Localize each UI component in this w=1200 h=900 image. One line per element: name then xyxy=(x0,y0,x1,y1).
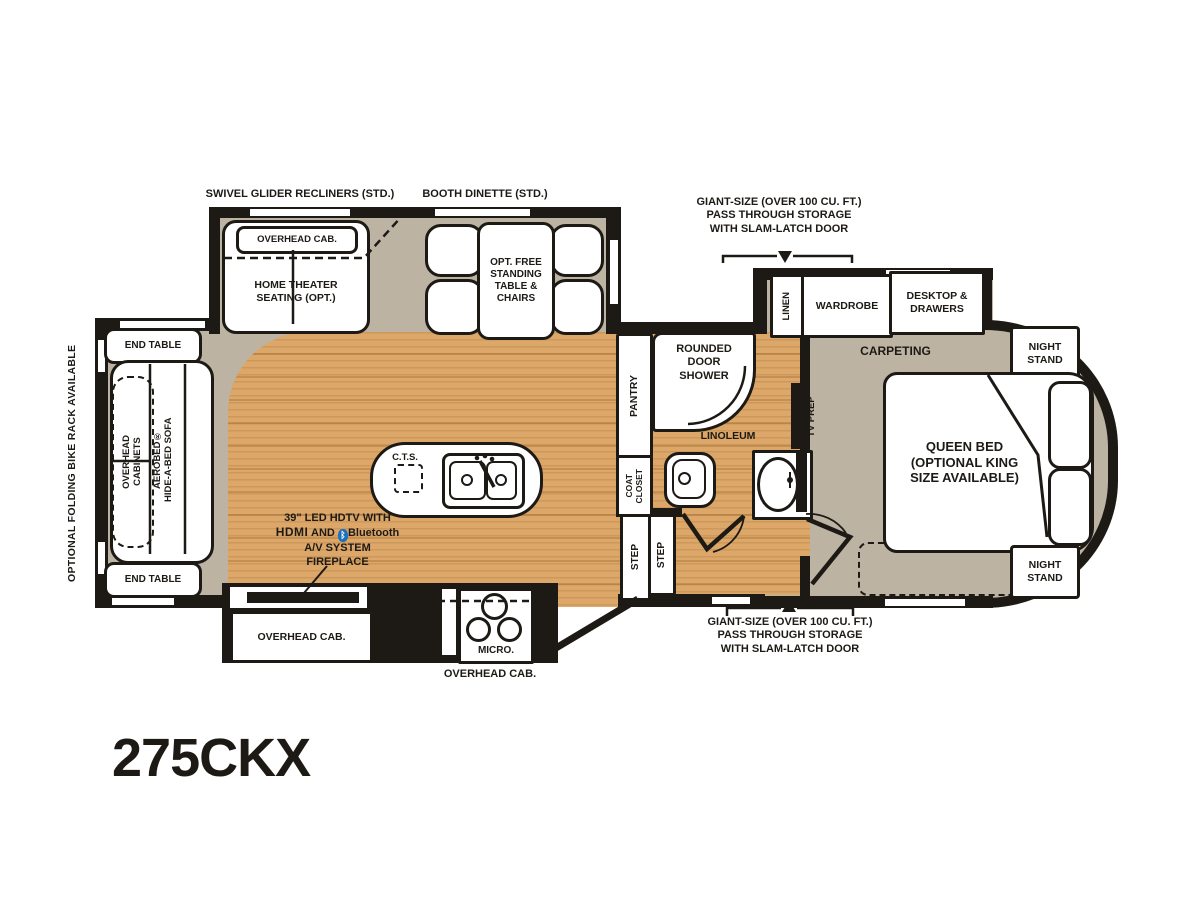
queen-bed-label: QUEEN BED(OPTIONAL KINGSIZE AVAILABLE) xyxy=(910,439,1019,487)
coat-closet: COATCLOSET xyxy=(616,455,653,517)
end-table-bottom: END TABLE xyxy=(104,562,202,598)
linen-label: LINEN xyxy=(782,292,793,321)
overhead-cabinets-label: OVERHEADCABINETS xyxy=(122,435,144,489)
micro-label: MICRO. xyxy=(478,645,514,657)
sink-drain-left xyxy=(461,474,473,486)
overhead-cab-below-label: OVERHEAD CAB. xyxy=(430,668,550,681)
step-right: STEP xyxy=(648,514,676,596)
dinette-chair xyxy=(550,224,604,277)
window-bottom-mid xyxy=(712,597,750,604)
coat-closet-label: COATCLOSET xyxy=(625,469,645,503)
counter-divider xyxy=(442,589,456,655)
window-rear-bottom xyxy=(112,598,174,605)
burner xyxy=(481,593,508,620)
linen-closet: LINEN xyxy=(770,274,805,338)
tv-prep-label: TV PREP xyxy=(806,380,824,454)
sink-drain-right xyxy=(495,474,507,486)
night-stand-bottom: NIGHTSTAND xyxy=(1010,545,1080,599)
pantry-label: PANTRY xyxy=(628,375,640,417)
sofa-label: AEROBED®HIDE-A-BED SOFA xyxy=(152,378,192,542)
desktop-drawers: DESKTOP &DRAWERS xyxy=(889,271,985,335)
slide-left-wall xyxy=(209,207,220,334)
wardrobe: WARDROBE xyxy=(801,274,893,338)
bike-rack-caption: OPTIONAL FOLDING BIKE RACK AVAILABLE xyxy=(66,316,88,610)
carpeting-label: CARPETING xyxy=(838,344,953,359)
hall-right-wall-lower xyxy=(800,556,810,604)
overhead-cab-ent-label: OVERHEAD CAB. xyxy=(257,631,345,644)
home-theater-label: HOME THEATERSEATING (OPT.) xyxy=(254,279,337,305)
night-stand-top-label: NIGHTSTAND xyxy=(1027,341,1062,367)
overhead-cab-living: OVERHEAD CAB. xyxy=(236,226,358,254)
window-recliner xyxy=(250,209,350,216)
overhead-cab-entertainment: OVERHEAD CAB. xyxy=(230,611,373,663)
window-slide-right xyxy=(610,240,618,304)
dinette-chair xyxy=(425,224,484,277)
linoleum-label: LINOLEUM xyxy=(688,430,768,443)
model-number: 275CKX xyxy=(112,726,310,792)
storage-front-caption: GIANT-SIZE (OVER 100 CU. FT.) PASS THROU… xyxy=(659,196,899,236)
end-table-top-label: END TABLE xyxy=(125,340,181,352)
slide-dinette-caption: BOOTH DINETTE (STD.) xyxy=(405,188,565,201)
desktop-drawers-label: DESKTOP &DRAWERS xyxy=(907,290,968,316)
end-table-top: END TABLE xyxy=(104,328,202,364)
step-right-label: STEP xyxy=(656,542,668,568)
shower-label: ROUNDEDDOORSHOWER xyxy=(661,343,747,383)
burner xyxy=(466,617,491,642)
hdmi-logo: HDMI xyxy=(276,525,309,539)
dinette-table: OPT. FREESTANDING TABLE &CHAIRS xyxy=(477,222,555,340)
window-dinette xyxy=(435,209,530,216)
toilet-flush xyxy=(678,472,691,485)
storage-rear-caption: GIANT-SIZE (OVER 100 CU. FT.) PASS THROU… xyxy=(670,616,910,656)
pantry: PANTRY xyxy=(616,333,653,459)
tv-caption: 39" LED HDTV WITH HDMI AND ᛒBluetooth A/… xyxy=(240,512,435,569)
vanity-sink xyxy=(757,457,799,512)
overhead-cab-living-label: OVERHEAD CAB. xyxy=(257,234,337,246)
window-bedroom-bottom xyxy=(885,599,965,606)
dinette-chair xyxy=(425,279,484,335)
step-left-label: STEP xyxy=(630,544,642,570)
cts-outline xyxy=(394,464,423,493)
dinette-table-label: OPT. FREESTANDING TABLE &CHAIRS xyxy=(490,257,542,306)
wardrobe-label: WARDROBE xyxy=(816,300,878,313)
entry-floor-patch xyxy=(556,590,620,607)
end-table-bottom-label: END TABLE xyxy=(125,574,181,586)
window-rear-top xyxy=(120,321,205,328)
tv-prep-bar xyxy=(791,383,800,449)
dinette-chair xyxy=(550,279,604,335)
cts-label: C.T.S. xyxy=(385,452,425,464)
bluetooth-icon: ᛒ xyxy=(338,529,348,542)
pillow-top xyxy=(1048,381,1092,469)
slide-recliners-caption: SWIVEL GLIDER RECLINERS (STD.) xyxy=(185,188,415,201)
burner xyxy=(497,617,522,642)
overhead-cabinets-outline: OVERHEADCABINETS xyxy=(112,376,154,548)
night-stand-bottom-label: NIGHTSTAND xyxy=(1027,559,1062,585)
floorplan-275ckx: HOME THEATERSEATING (OPT.) OVERHEAD CAB.… xyxy=(0,0,1200,900)
tv-39-led xyxy=(247,592,359,603)
step-left: STEP xyxy=(620,514,651,601)
pillow-bottom xyxy=(1048,468,1092,546)
